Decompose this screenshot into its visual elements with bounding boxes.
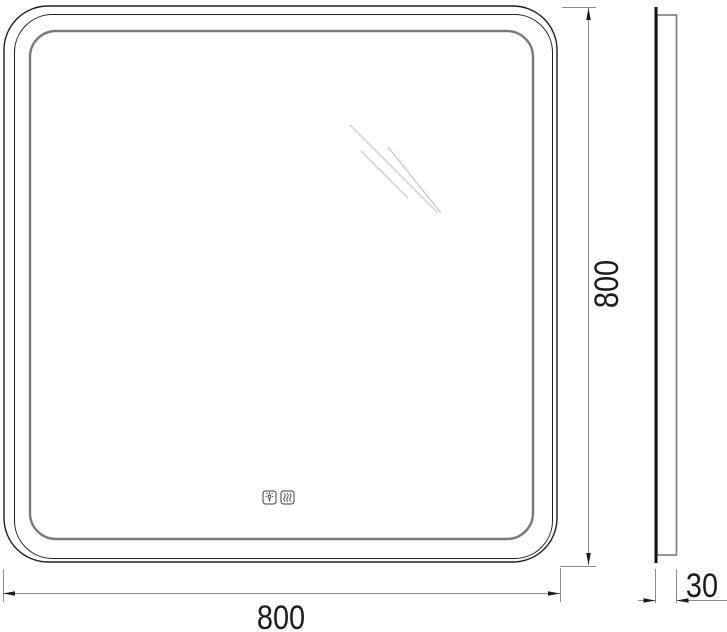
arrowhead-right xyxy=(644,598,656,603)
height-dimension: 800 xyxy=(560,8,626,567)
arrowhead-down xyxy=(586,553,591,565)
mirror-front-view xyxy=(4,6,557,562)
arrowhead-up xyxy=(586,8,591,20)
technical-drawing-canvas: 800 800 30 xyxy=(0,0,727,632)
side-view-body xyxy=(657,15,677,555)
depth-dimension-label: 30 xyxy=(686,566,718,605)
width-dimension: 800 xyxy=(3,568,561,632)
height-dimension-label: 800 xyxy=(587,260,626,308)
width-dimension-label: 800 xyxy=(257,598,305,632)
mirror-outer-edge xyxy=(4,6,557,562)
arrowhead-left xyxy=(3,591,15,596)
light-button xyxy=(263,491,276,504)
mirror-dimension-drawing: 800 800 30 xyxy=(0,0,727,632)
mirror-side-view xyxy=(656,7,677,563)
depth-dimension: 30 xyxy=(638,566,727,605)
heater-button xyxy=(281,491,294,504)
arrowhead-right xyxy=(548,591,560,596)
